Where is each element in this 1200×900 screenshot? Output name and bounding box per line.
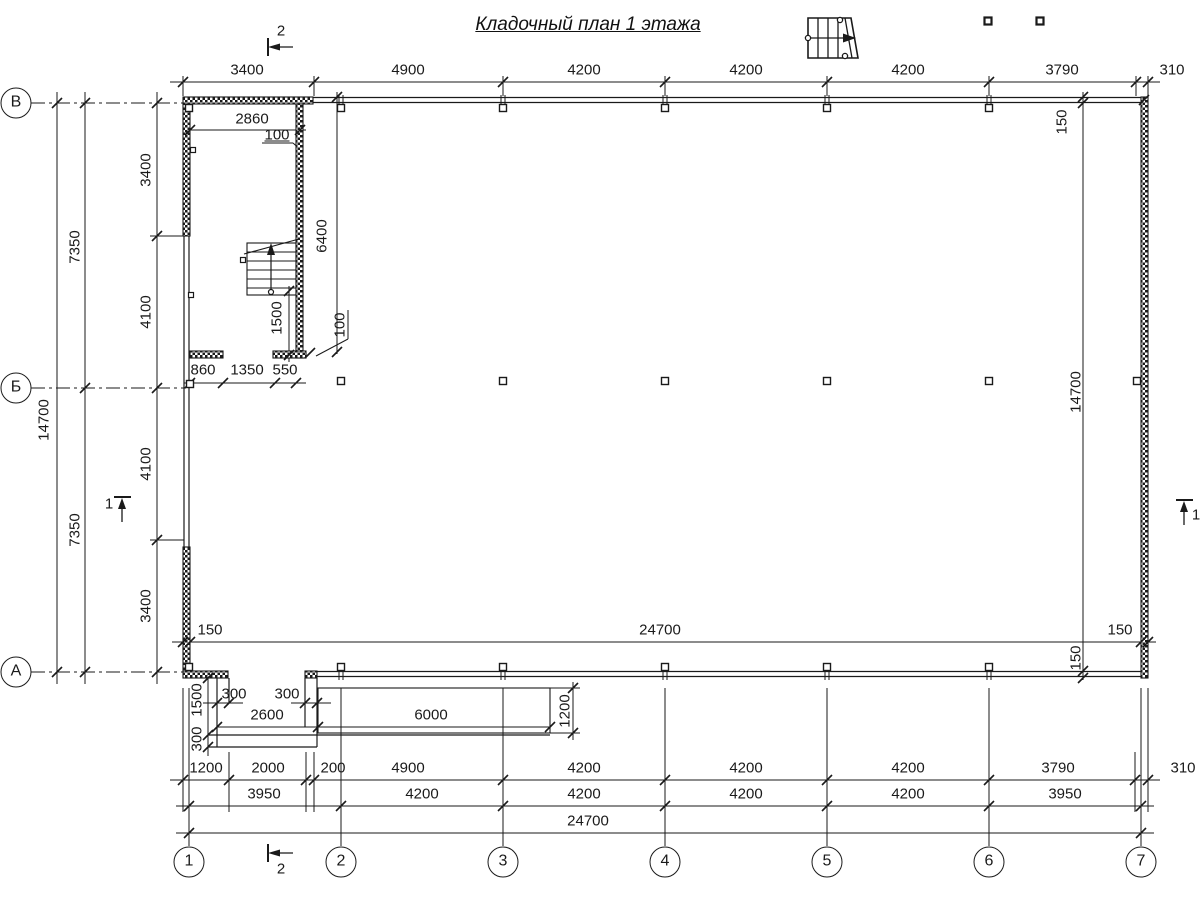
section-1-label-left: 1 xyxy=(105,497,113,512)
dim-label: 3950 xyxy=(1048,787,1081,802)
dim-label: 4200 xyxy=(891,761,924,776)
grid-bubble-В: В xyxy=(1,88,32,119)
dim-label: 3950 xyxy=(247,787,280,802)
dim-label: 7350 xyxy=(68,230,83,263)
dim-label: 200 xyxy=(320,761,345,776)
section-2-label-top: 2 xyxy=(277,24,285,39)
walls xyxy=(183,97,1148,678)
column-markers xyxy=(186,18,1141,671)
dim-label: 860 xyxy=(190,363,215,378)
dim-label: 4200 xyxy=(567,63,600,78)
dim-label: 2860 xyxy=(235,112,268,127)
dim-label: 4100 xyxy=(139,295,154,328)
section-2-label-bottom: 2 xyxy=(277,862,285,877)
grid-bubble-4: 4 xyxy=(650,847,681,878)
grid-bubble-Б: Б xyxy=(1,373,32,404)
dim-label: 4200 xyxy=(891,63,924,78)
dim-label: 3790 xyxy=(1041,761,1074,776)
mini-stair-symbol xyxy=(805,17,858,58)
section-markers xyxy=(114,38,1193,862)
dim-label: 1500 xyxy=(190,683,205,716)
dim-label: 100 xyxy=(333,312,348,337)
grid-bubble-7: 7 xyxy=(1126,847,1157,878)
dim-label: 4200 xyxy=(405,787,438,802)
dimension-lines xyxy=(57,82,1160,833)
dim-label: 6400 xyxy=(315,219,330,252)
dim-label: 24700 xyxy=(567,814,609,829)
dim-label: 4100 xyxy=(139,447,154,480)
grid-bubble-А: А xyxy=(1,657,32,688)
dim-label: 6000 xyxy=(414,708,447,723)
staircase xyxy=(244,239,299,295)
dim-label: 550 xyxy=(272,363,297,378)
dim-label: 1350 xyxy=(230,363,263,378)
dim-label: 4200 xyxy=(567,761,600,776)
dim-label: 310 xyxy=(1170,761,1195,776)
dim-label: 150 xyxy=(1055,109,1070,134)
dim-label: 310 xyxy=(1159,63,1184,78)
dim-label: 1200 xyxy=(558,694,573,727)
dim-label: 4200 xyxy=(729,761,762,776)
axis-lines xyxy=(31,103,186,672)
dim-label: 300 xyxy=(274,687,299,702)
dim-label: 3400 xyxy=(139,589,154,622)
dim-label: 3400 xyxy=(139,153,154,186)
dim-label: 4900 xyxy=(391,761,424,776)
masonry-plan-sheet: Кладочный план 1 этажа 34004900420042004… xyxy=(0,0,1200,900)
dim-label: 4200 xyxy=(729,787,762,802)
dim-label: 150 xyxy=(1107,623,1132,638)
dim-label: 14700 xyxy=(1069,371,1084,413)
thin-walls-and-porch xyxy=(184,95,1141,747)
grid-bubble-1: 1 xyxy=(174,847,205,878)
drawing-title: Кладочный план 1 этажа xyxy=(438,14,738,36)
dim-label: 1200 xyxy=(189,761,222,776)
dim-label: 100 xyxy=(264,128,289,143)
section-1-label-right: 1 xyxy=(1192,508,1200,523)
dim-label: 2600 xyxy=(250,708,283,723)
dim-label: 1500 xyxy=(270,301,285,334)
dim-label: 24700 xyxy=(639,623,681,638)
grid-bubble-2: 2 xyxy=(326,847,357,878)
dim-label: 14700 xyxy=(37,399,52,441)
dim-label: 2000 xyxy=(251,761,284,776)
dim-label: 300 xyxy=(221,687,246,702)
dim-label: 4900 xyxy=(391,63,424,78)
dim-label: 150 xyxy=(1069,645,1084,670)
dim-label: 4200 xyxy=(891,787,924,802)
dim-label: 4200 xyxy=(729,63,762,78)
dim-label: 3400 xyxy=(230,63,263,78)
dim-label: 300 xyxy=(190,726,205,751)
grid-bubble-5: 5 xyxy=(812,847,843,878)
dim-label: 150 xyxy=(197,623,222,638)
grid-bubble-6: 6 xyxy=(974,847,1005,878)
dim-label: 7350 xyxy=(68,513,83,546)
dim-label: 4200 xyxy=(567,787,600,802)
dim-label: 3790 xyxy=(1045,63,1078,78)
grid-bubble-3: 3 xyxy=(488,847,519,878)
